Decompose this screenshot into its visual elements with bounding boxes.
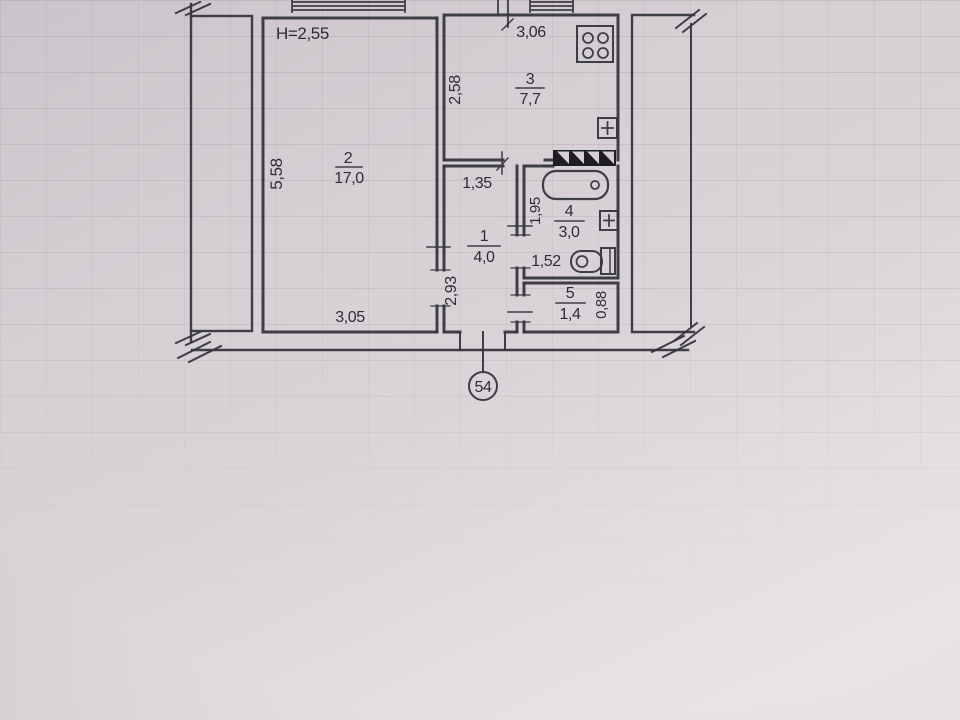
door-opening-bathroom: [511, 235, 530, 268]
dim-bathroom-depth: 1,95: [527, 197, 544, 225]
plus-box-icon-bathroom: [600, 211, 618, 230]
dim-kitchen-width: 3,06: [516, 24, 546, 41]
dim-bathroom-width: 1,52: [531, 253, 561, 270]
dim-wc-depth: 0,88: [593, 291, 610, 319]
break-mark-corridor-left: [178, 342, 221, 362]
room-living-number: 2: [344, 150, 353, 167]
room-kitchen-number: 3: [526, 71, 535, 88]
toilet-icon: [571, 248, 615, 274]
vent-shaft-icon: [553, 150, 616, 166]
dim-living-depth: 5,58: [267, 158, 286, 190]
dim-hall-depth: 2,93: [443, 276, 460, 306]
break-mark-bottom-left: [176, 332, 210, 345]
window-kitchen: [530, 0, 573, 12]
room-hall-number: 1: [480, 228, 489, 245]
plus-box-icon-kitchen: [598, 118, 617, 138]
room-hall-area: 4,0: [473, 249, 495, 266]
right-building-wall: [632, 15, 694, 332]
room-living-area: 17,0: [334, 170, 364, 187]
bathtub-icon: [543, 171, 608, 199]
room-bathroom-number: 4: [565, 203, 574, 220]
stove-icon: [577, 26, 613, 62]
room-kitchen-area: 7,7: [519, 91, 541, 108]
apartment-number-circle: 54: [469, 372, 497, 400]
window-living-room: [292, 0, 405, 12]
break-mark-bottom-right: [674, 323, 704, 345]
room-wc-area: 1,4: [559, 306, 581, 323]
dimension-tick-135: [497, 152, 508, 174]
ceiling-height-label: H=2,55: [276, 24, 329, 43]
dim-kitchen-depth: 2,58: [447, 75, 464, 105]
floor-plan-drawing: 54 H=2,55 2 17,0 5,58 3,05: [0, 0, 960, 720]
dim-living-width: 3,05: [335, 309, 365, 326]
dim-hall-width: 1,35: [462, 175, 492, 192]
left-building-wall: [191, 4, 252, 342]
apartment-number: 54: [475, 379, 492, 396]
door-opening-wc: [511, 295, 530, 322]
break-mark-top-left: [176, 2, 210, 15]
room-wc-number: 5: [566, 285, 575, 302]
room-bathroom-area: 3,0: [558, 224, 580, 241]
